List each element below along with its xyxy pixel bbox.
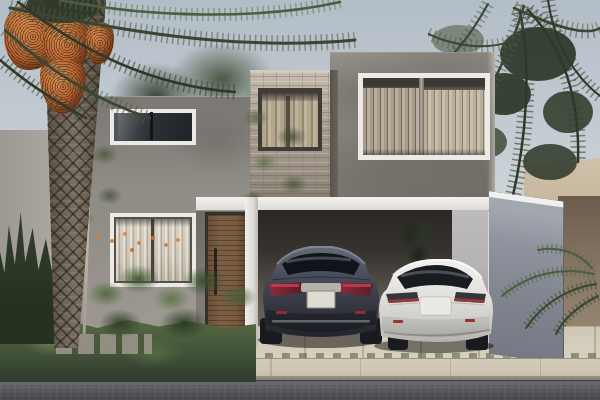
palm-foliage-mass bbox=[543, 91, 593, 133]
fascia-band bbox=[196, 197, 498, 211]
reflector bbox=[393, 320, 403, 323]
dark-sedan bbox=[256, 232, 386, 350]
palm-foliage-mass bbox=[523, 144, 577, 180]
palm-fronds-left bbox=[0, 0, 380, 150]
window-mullion bbox=[419, 78, 424, 155]
taillight-glow bbox=[271, 284, 299, 287]
license-plate-recess bbox=[420, 297, 451, 315]
architectural-render: Photorealistic render of a modern two-st… bbox=[0, 0, 600, 400]
palm-frond bbox=[526, 284, 596, 328]
palm-fronds-right-front bbox=[498, 244, 600, 340]
curtain-right-panel bbox=[424, 90, 485, 155]
license-plate bbox=[307, 291, 335, 308]
palm-frond bbox=[502, 271, 594, 296]
reflector bbox=[465, 319, 475, 322]
reflector bbox=[276, 311, 287, 314]
reflector bbox=[355, 311, 366, 314]
street bbox=[0, 380, 600, 400]
palm-frond bbox=[556, 296, 598, 334]
white-sedan bbox=[372, 250, 504, 354]
palm-frond bbox=[60, 0, 340, 15]
taillight-glow bbox=[343, 284, 371, 287]
window-sill-shadow bbox=[363, 149, 485, 155]
palm-frond bbox=[538, 249, 592, 268]
bumper-chrome bbox=[272, 320, 370, 323]
